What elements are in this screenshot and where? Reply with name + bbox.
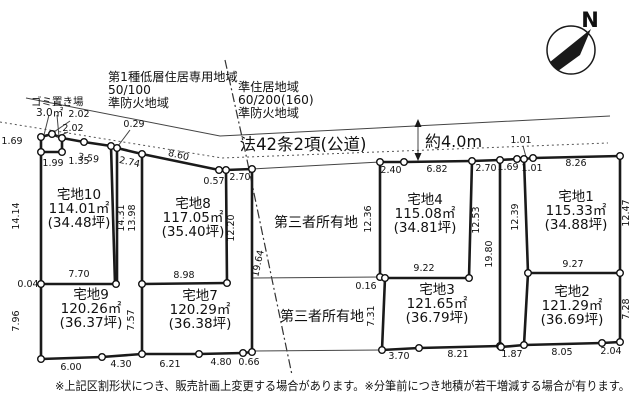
road-width-label: 約4.0m [425, 132, 482, 151]
disclaimer-note: ※上記区割形状につき、販売計画上変更する場合があります。※分筆前につき地積が若干… [55, 379, 630, 393]
survey-point-icon [49, 131, 56, 138]
third-party-upper-label: 第三者所有地 [274, 214, 358, 231]
dimension-label: 12.47 [621, 199, 632, 226]
dimension-label: 12.36 [363, 205, 374, 232]
survey-point-icon [521, 156, 528, 163]
lot-front-boundary-right [472, 156, 620, 161]
dimension-label: 1.01 [521, 163, 542, 174]
dimension-label: 4.30 [110, 359, 131, 370]
road-width-arrow [415, 119, 422, 161]
survey-point-icon [113, 281, 120, 288]
lot1-west-boundary [524, 159, 528, 273]
road-name-label: 法42条2項(公道) [240, 135, 367, 154]
north-compass: N [547, 8, 599, 74]
dimension-label: 2.04 [600, 346, 621, 357]
survey-point-icon [379, 347, 386, 354]
survey-point-icon [377, 159, 384, 166]
survey-point-icon [216, 167, 223, 174]
survey-point-icon [469, 158, 476, 165]
third-party-bottom-line [252, 350, 382, 351]
dimension-label: 8.21 [447, 349, 468, 360]
survey-point-icon [223, 167, 230, 174]
dimension-label: 0.29 [123, 119, 144, 130]
survey-point-icon [59, 149, 66, 156]
north-label: N [581, 8, 599, 32]
survey-point-icon [139, 151, 146, 158]
dimension-label: 2.02 [62, 123, 83, 134]
survey-point-icon [599, 340, 606, 347]
survey-point-icon [38, 356, 45, 363]
dimension-label: 6.00 [60, 362, 81, 373]
dim-leader-029 [118, 130, 130, 146]
lot-tsubo-label: (34.81坪) [394, 220, 457, 236]
survey-point-icon [497, 157, 504, 164]
lot-tsubo-label: (36.38坪) [169, 316, 232, 332]
dimension-label: 14.14 [11, 202, 22, 229]
dimension-label: 1.87 [501, 349, 522, 360]
survey-point-icon [38, 134, 45, 141]
survey-point-icon [416, 345, 423, 352]
survey-point-icon [382, 275, 389, 282]
dimension-label: 12.53 [471, 206, 482, 233]
dimension-label: 2.70 [229, 172, 250, 183]
survey-point-icon [224, 280, 231, 287]
zoning-right-line2: 60/200(160) [238, 93, 314, 107]
lot-tsubo-label: (36.79坪) [406, 310, 469, 326]
survey-point-icon [81, 139, 88, 146]
survey-point-icon [617, 270, 624, 277]
lot3-south-boundary [382, 346, 500, 350]
compass-needle-icon [550, 29, 591, 71]
lot10-east-boundary [111, 146, 115, 284]
arrow-head-down-icon [415, 153, 422, 161]
zoning-right-line1: 準住居地域 [238, 79, 299, 94]
survey-point-icon [249, 349, 256, 356]
dimension-label: 8.98 [173, 270, 194, 281]
survey-point-icon [521, 342, 528, 349]
lot4-south-boundary [380, 277, 469, 278]
lot4-north-boundary [380, 161, 472, 162]
dimension-label: 7.70 [68, 269, 89, 280]
survey-point-icon [114, 145, 121, 152]
dimension-label: 7.96 [11, 310, 22, 331]
zoning-right-block: 準住居地域 60/200(160) 準防火地域 [238, 79, 314, 120]
survey-point-icon [59, 135, 66, 142]
dimension-label: 8.26 [565, 158, 586, 169]
dimension-label: 12.39 [510, 203, 521, 230]
dimension-label: 0.57 [203, 176, 224, 187]
survey-point-icon [514, 156, 521, 163]
dimension-label: 0.04 [17, 279, 38, 290]
site-plan-svg: N 第1種低層住居専用地域 50/100 準防火地域 準住居地域 60/200(… [0, 0, 640, 403]
dimension-label: 6.21 [159, 359, 180, 370]
lot2-west-boundary [524, 273, 528, 345]
garbage-area-size: 3.0㎡ [36, 107, 64, 119]
survey-point-icon [240, 350, 247, 357]
dimension-label: 19.80 [484, 240, 495, 267]
dimension-label: 0.16 [355, 281, 376, 292]
survey-point-icon [139, 351, 146, 358]
dimension-label: 14.31 [116, 204, 127, 231]
dimension-label: 1.69 [1, 136, 22, 147]
lot3-west-boundary [382, 278, 385, 350]
survey-point-icon [38, 281, 45, 288]
dimension-label: 9.22 [413, 263, 434, 274]
dimension-label: 9.27 [562, 259, 583, 270]
zoning-left-line1: 第1種低層住居専用地域 [108, 70, 238, 84]
dimension-label: 7.28 [621, 298, 632, 319]
survey-point-icon [498, 344, 505, 351]
zoning-left-block: 第1種低層住居専用地域 50/100 準防火地域 [108, 70, 238, 110]
dimension-label: 1.99 [42, 158, 63, 169]
lot-tsubo-label: (35.40坪) [162, 224, 225, 240]
dimension-label: 6.82 [426, 164, 447, 175]
lot-tsubo-label: (36.37坪) [60, 315, 123, 331]
survey-point-icon [249, 166, 256, 173]
zoning-left-line2: 50/100 [108, 83, 151, 97]
survey-point-icon [617, 339, 624, 346]
survey-point-icon [530, 155, 537, 162]
dimension-label: 7.57 [126, 309, 137, 330]
zoning-left-line3: 準防火地域 [108, 95, 169, 110]
survey-point-icon [139, 281, 146, 288]
survey-point-icon [196, 351, 203, 358]
lot-subdivision-drawing: N 第1種低層住居専用地域 50/100 準防火地域 準住居地域 60/200(… [0, 0, 640, 403]
lot-tsubo-label: (34.88坪) [545, 217, 608, 233]
survey-point-icon [38, 149, 45, 156]
dimension-label: 12.20 [226, 214, 237, 241]
lot8-south-boundary [142, 283, 227, 284]
survey-point-icon [99, 354, 106, 361]
lot-tsubo-label: (34.48坪) [48, 215, 111, 231]
dimension-label: 3.70 [388, 351, 409, 362]
lot-tsubo-label: (36.69坪) [541, 312, 604, 328]
dimension-label: 8.05 [551, 347, 572, 358]
dimension-label: 2.74 [118, 155, 141, 170]
survey-point-icon [525, 270, 532, 277]
arrow-head-up-icon [415, 119, 422, 127]
dimension-label: 7.31 [366, 305, 377, 326]
survey-point-icon [466, 275, 473, 282]
dimension-label: 4.80 [210, 357, 231, 368]
dimension-label: 2.02 [68, 109, 89, 120]
third-party-lower-label: 第三者所有地 [280, 308, 364, 325]
third-party-top-line [252, 162, 380, 169]
survey-point-icon [617, 153, 624, 160]
dimension-label: 1.01 [510, 135, 531, 146]
zoning-right-line3: 準防火地域 [238, 105, 299, 120]
dimension-label: 2.40 [380, 165, 401, 176]
dimension-label: 0.66 [238, 357, 259, 368]
dimension-label: 13.98 [127, 204, 138, 231]
dimension-label: 2.70 [475, 163, 496, 174]
survey-point-icon [401, 159, 408, 166]
